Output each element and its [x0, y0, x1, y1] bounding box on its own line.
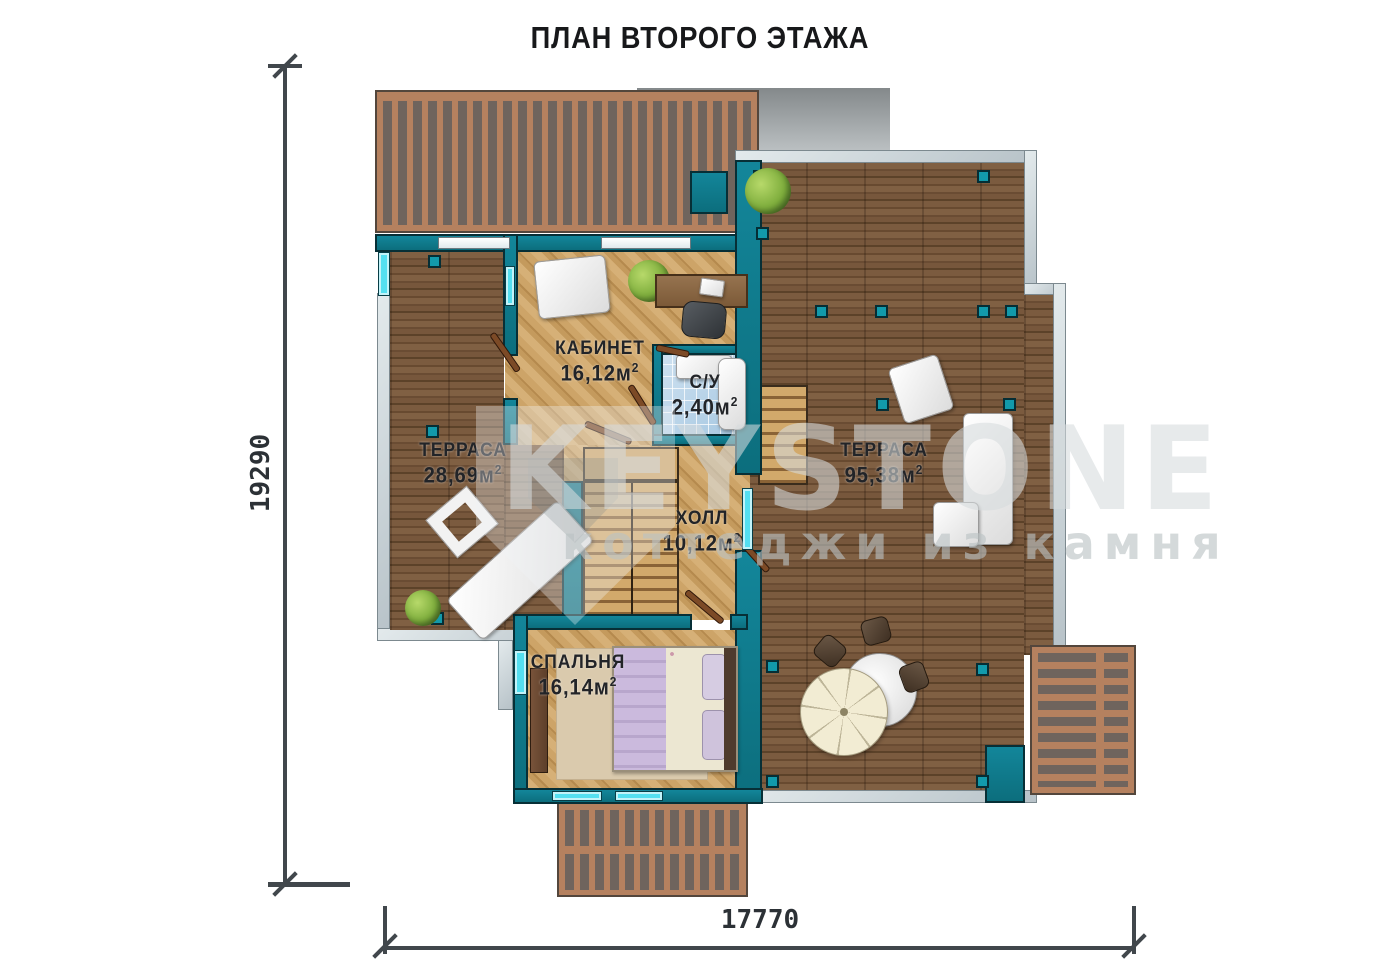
terrace-post [976, 775, 989, 788]
room-area: 10,12м2 [663, 530, 742, 556]
terrace-post [815, 305, 828, 318]
window [378, 252, 390, 296]
terrace-right-deck [1024, 295, 1053, 655]
wall [652, 344, 663, 444]
dimension-line-horizontal [385, 946, 1135, 950]
wall-junction [690, 171, 728, 214]
terrace-post [428, 255, 441, 268]
window [615, 791, 663, 801]
terrace-railing [377, 293, 390, 641]
window-sill [498, 640, 513, 710]
window [601, 237, 691, 249]
pillow [702, 710, 726, 760]
window [505, 266, 515, 306]
terrace-post [1003, 398, 1016, 411]
wall-corner [985, 745, 1025, 803]
terrace-post [977, 170, 990, 183]
terrace-railing [1053, 283, 1066, 655]
terrace-railing [1024, 150, 1037, 295]
wall-bedroom-top [516, 614, 692, 630]
terrace-post [766, 775, 779, 788]
bed-quilt [666, 648, 700, 770]
pergola-slats [1104, 653, 1128, 787]
wall-bedroom-top [730, 614, 748, 630]
pergola-slats [1038, 653, 1096, 787]
room-name: ТЕРРАСА [419, 440, 507, 462]
room-area: 16,12м2 [555, 360, 645, 386]
terrace-post [977, 305, 990, 318]
pillow [702, 654, 726, 700]
terrace-post [976, 663, 989, 676]
potted-plant [405, 590, 441, 626]
room-name: ХОЛЛ [663, 508, 742, 530]
dimension-line-vertical [283, 66, 287, 884]
window [552, 791, 602, 801]
terrace-steps [758, 385, 808, 485]
bed [612, 646, 738, 772]
headboard [724, 648, 736, 770]
desk-chair [681, 300, 728, 340]
pergola-roof-right [1030, 645, 1136, 795]
pergola-slats [565, 810, 740, 846]
wall-office-left [503, 398, 518, 445]
terrace-post [876, 398, 889, 411]
wall-top [375, 234, 762, 252]
floor-plan-page: ПЛАН ВТОРОГО ЭТАЖА 19290 17770 [0, 0, 1400, 976]
wall-terrace [735, 550, 762, 803]
room-name: ТЕРРАСА [840, 440, 928, 462]
pergola-roof-bottom [557, 802, 748, 897]
terrace-post [766, 660, 779, 673]
room-area: 28,69м2 [419, 462, 507, 488]
stair-landing [583, 447, 679, 481]
room-label-office: КАБИНЕТ 16,12м2 [555, 338, 645, 386]
laptop [699, 277, 725, 297]
room-area: 16,14м2 [531, 674, 625, 700]
terrace-door-glass [742, 488, 753, 550]
terrace-post [426, 425, 439, 438]
terrace-post [756, 227, 769, 240]
terrace-post [1005, 305, 1018, 318]
room-area: 2,40м2 [672, 394, 739, 420]
corner-sofa [933, 502, 979, 547]
window [438, 237, 510, 249]
room-label-bathroom: С/У 2,40м2 [672, 372, 739, 420]
room-label-bedroom: СПАЛЬНЯ 16,14м2 [531, 652, 625, 700]
potted-plant [745, 168, 791, 214]
dimension-value-height: 19290 [246, 434, 276, 512]
dimension-value-width: 17770 [721, 905, 799, 935]
office-armchair [533, 254, 611, 319]
page-title: ПЛАН ВТОРОГО ЭТАЖА [84, 20, 1316, 56]
pergola-slats [565, 854, 740, 890]
stair-divider [631, 483, 633, 616]
room-label-terrace-left: ТЕРРАСА 28,69м2 [419, 440, 507, 488]
room-name: КАБИНЕТ [555, 338, 645, 360]
room-name: СПАЛЬНЯ [531, 652, 625, 674]
window [514, 650, 527, 695]
wall-bedroom-left [513, 614, 528, 804]
room-label-hall: ХОЛЛ 10,12м2 [663, 508, 742, 556]
terrace-railing [735, 150, 1037, 163]
room-name: С/У [672, 372, 739, 394]
room-area: 95,38м2 [840, 462, 928, 488]
room-label-terrace-right: ТЕРРАСА 95,38м2 [840, 440, 928, 488]
patio-umbrella [800, 668, 888, 756]
terrace-post [875, 305, 888, 318]
